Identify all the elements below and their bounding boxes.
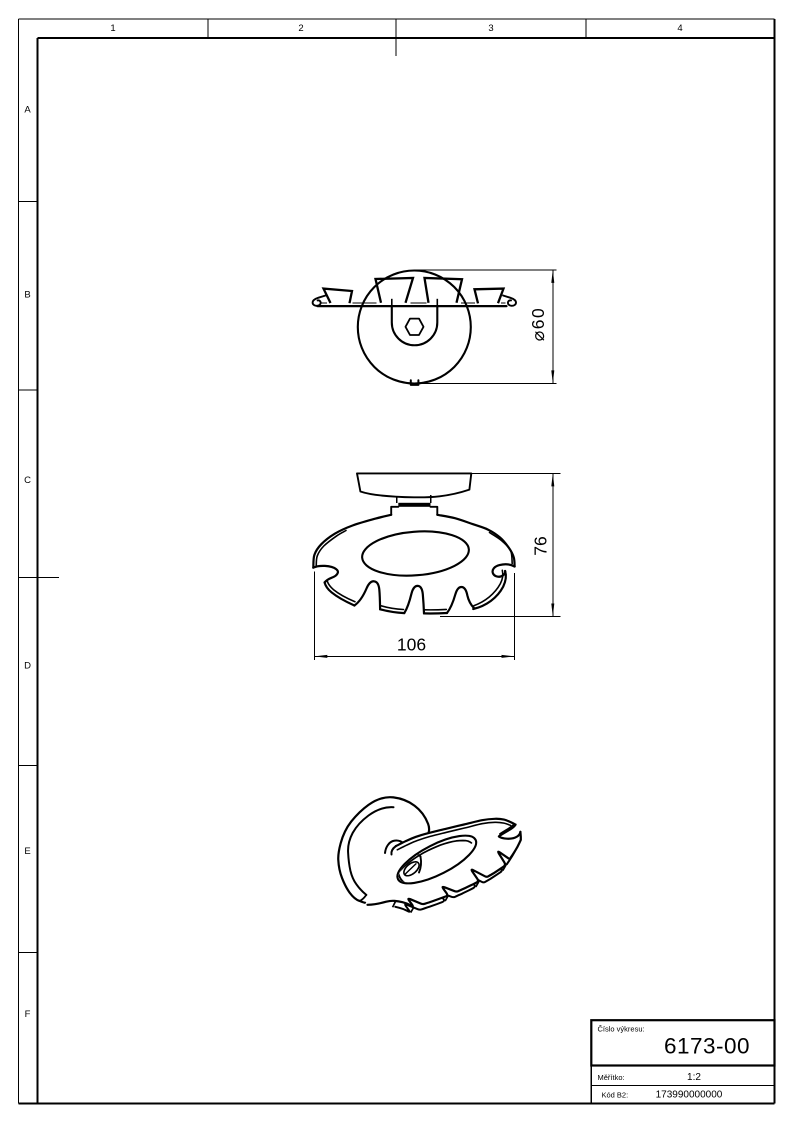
svg-text:4: 4: [677, 23, 682, 34]
svg-text:2: 2: [298, 23, 303, 34]
svg-text:A: A: [24, 105, 31, 116]
svg-text:Kód B2:: Kód B2:: [602, 1091, 629, 1100]
svg-text:Měřítko:: Měřítko:: [598, 1073, 625, 1082]
svg-text:E: E: [24, 846, 30, 857]
svg-text:3: 3: [488, 23, 493, 34]
svg-text:⌀60: ⌀60: [528, 307, 548, 342]
svg-text:F: F: [25, 1009, 31, 1020]
svg-text:1:2: 1:2: [687, 1072, 701, 1083]
svg-text:Číslo výkresu:: Číslo výkresu:: [598, 1025, 645, 1034]
svg-text:1: 1: [110, 23, 115, 34]
svg-text:106: 106: [397, 635, 426, 655]
svg-text:76: 76: [531, 536, 551, 555]
svg-text:173990000000: 173990000000: [656, 1090, 723, 1101]
svg-text:6173-00: 6173-00: [664, 1034, 750, 1059]
svg-text:C: C: [24, 475, 31, 486]
svg-text:B: B: [24, 290, 30, 301]
svg-text:D: D: [24, 661, 31, 672]
